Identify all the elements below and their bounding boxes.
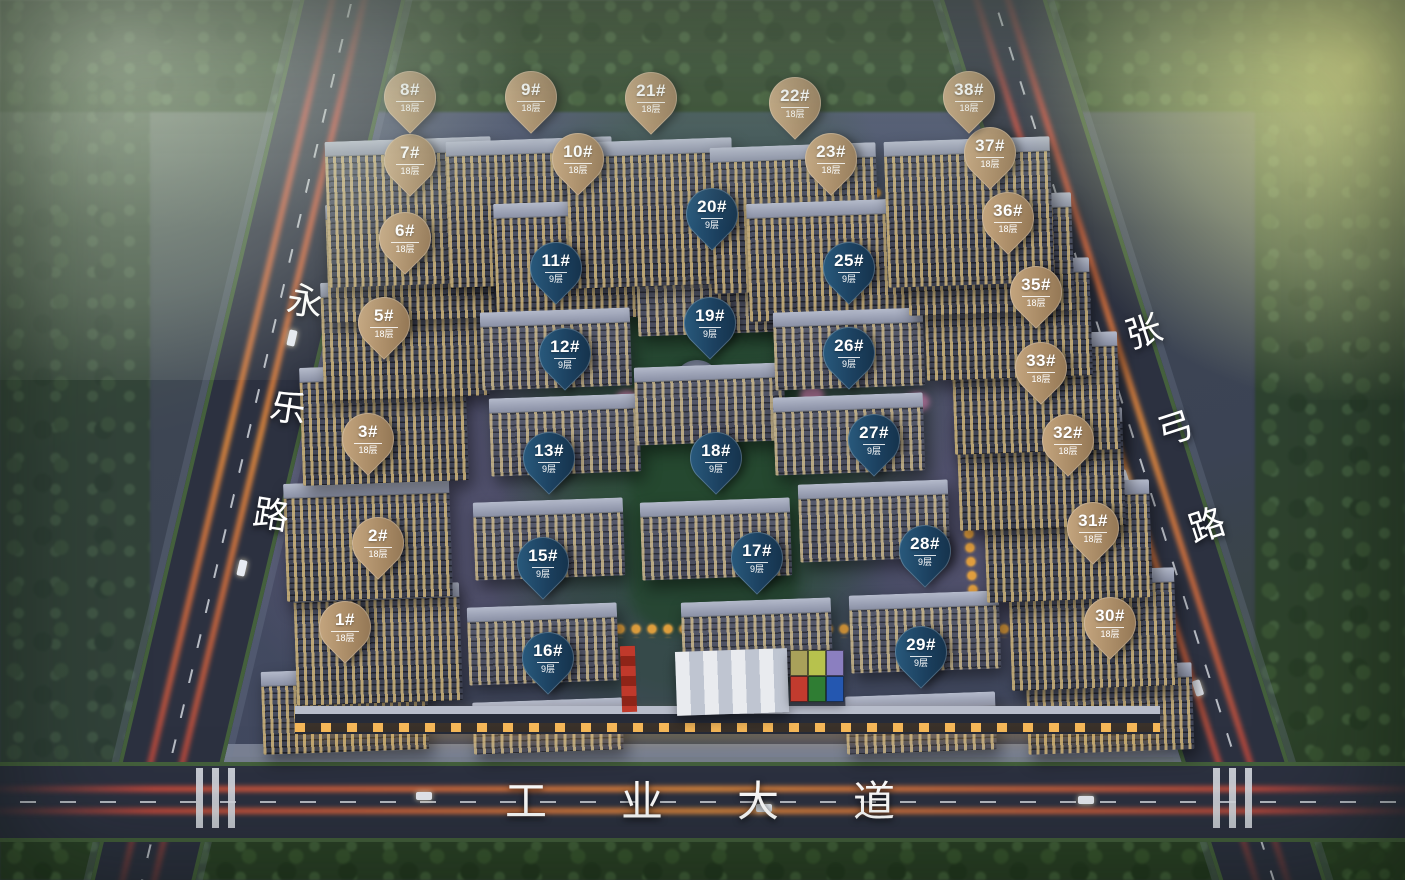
pin-content: 18#9层	[690, 432, 742, 484]
pin-content: 25#9层	[823, 242, 875, 294]
pin-content: 36#18层	[982, 192, 1034, 244]
pin-building-number: 2#	[368, 527, 388, 544]
building-pin-3[interactable]: 3#18层	[331, 402, 405, 476]
pin-building-number: 20#	[697, 198, 727, 215]
building-pin-17[interactable]: 17#9层	[720, 521, 794, 595]
pin-building-number: 26#	[834, 337, 864, 354]
pin-floor-count: 9层	[699, 327, 721, 340]
car	[1078, 796, 1094, 804]
pin-floor-count: 9层	[746, 562, 768, 575]
pin-content: 2#18层	[352, 517, 404, 569]
pin-floor-count: 18层	[1027, 372, 1054, 385]
pin-building-number: 27#	[859, 424, 889, 441]
pin-building-number: 12#	[550, 338, 580, 355]
pin-building-number: 36#	[993, 202, 1023, 219]
pin-content: 3#18层	[342, 413, 394, 465]
pin-floor-count: 9层	[554, 358, 576, 371]
building-pin-16[interactable]: 16#9层	[511, 621, 585, 695]
pin-floor-count: 18层	[564, 163, 591, 176]
building-pin-27[interactable]: 27#9层	[837, 403, 911, 477]
building-pin-29[interactable]: 29#9层	[884, 615, 958, 689]
pin-floor-count: 18层	[781, 107, 808, 120]
pin-building-number: 16#	[533, 642, 563, 659]
pin-building-number: 30#	[1095, 607, 1125, 624]
pin-floor-count: 18层	[637, 102, 664, 115]
building-pin-30[interactable]: 30#18层	[1073, 586, 1147, 660]
pin-floor-count: 9层	[838, 357, 860, 370]
pin-floor-count: 18层	[354, 443, 381, 456]
pin-floor-count: 9层	[910, 656, 932, 669]
pin-building-number: 23#	[816, 143, 846, 160]
pin-floor-count: 9层	[538, 462, 560, 475]
building-pin-23[interactable]: 23#18层	[794, 122, 868, 196]
aerial-masterplan: 1#18层2#18层3#18层5#18层6#18层7#18层8#18层9#18层…	[0, 0, 1405, 880]
building-pin-28[interactable]: 28#9层	[888, 514, 962, 588]
pin-content: 20#9层	[686, 188, 738, 240]
kindergarten-color-panels	[790, 650, 844, 702]
pin-content: 38#18层	[943, 71, 995, 123]
pin-content: 28#9层	[899, 525, 951, 577]
pin-floor-count: 18层	[817, 163, 844, 176]
pin-content: 22#18层	[769, 77, 821, 129]
color-panel	[790, 650, 808, 676]
pin-building-number: 11#	[542, 252, 571, 269]
building-pin-1[interactable]: 1#18层	[308, 590, 382, 664]
pin-floor-count: 9层	[838, 272, 860, 285]
pin-floor-count: 18层	[955, 101, 982, 114]
building-pin-26[interactable]: 26#9层	[812, 316, 886, 390]
crosswalk	[196, 768, 238, 828]
pin-floor-count: 18层	[1054, 444, 1081, 457]
pin-floor-count: 18层	[396, 101, 423, 114]
pin-content: 5#18层	[358, 297, 410, 349]
pin-building-number: 13#	[534, 442, 564, 459]
pin-building-number: 29#	[906, 636, 936, 653]
pin-building-number: 19#	[695, 307, 725, 324]
color-panel	[826, 676, 844, 702]
color-panel	[808, 650, 826, 676]
car	[416, 792, 432, 800]
pin-content: 27#9层	[848, 414, 900, 466]
pin-floor-count: 9层	[537, 662, 559, 675]
building-pin-21[interactable]: 21#18层	[614, 61, 688, 135]
pin-content: 16#9层	[522, 632, 574, 684]
pin-building-number: 32#	[1053, 424, 1083, 441]
building-pin-9[interactable]: 9#18层	[494, 60, 568, 134]
kindergarten-roof	[675, 648, 789, 716]
building-pin-22[interactable]: 22#18层	[758, 66, 832, 140]
building-pin-25[interactable]: 25#9层	[812, 231, 886, 305]
building-pin-5[interactable]: 5#18层	[347, 286, 421, 360]
pin-floor-count: 18层	[1096, 627, 1123, 640]
pin-building-number: 8#	[400, 81, 420, 98]
building-pin-10[interactable]: 10#18层	[541, 122, 615, 196]
pin-floor-count: 9层	[545, 272, 567, 285]
pin-content: 30#18层	[1084, 597, 1136, 649]
pin-content: 1#18层	[319, 601, 371, 653]
building-pin-32[interactable]: 32#18层	[1031, 403, 1105, 477]
pin-floor-count: 18层	[396, 164, 423, 177]
color-panel	[808, 676, 826, 702]
pin-building-number: 5#	[374, 307, 394, 324]
pin-floor-count: 9层	[705, 462, 727, 475]
building-pin-15[interactable]: 15#9层	[506, 526, 580, 600]
pin-building-number: 31#	[1078, 512, 1108, 529]
building-pin-8[interactable]: 8#18层	[373, 60, 447, 134]
pin-content: 15#9层	[517, 537, 569, 589]
pin-floor-count: 18层	[976, 157, 1003, 170]
pin-content: 29#9层	[895, 626, 947, 678]
pin-content: 37#18层	[964, 127, 1016, 179]
pin-building-number: 22#	[780, 87, 810, 104]
pin-content: 9#18层	[505, 71, 557, 123]
pin-floor-count: 18层	[331, 631, 358, 644]
pin-content: 26#9层	[823, 327, 875, 379]
pin-content: 7#18层	[384, 134, 436, 186]
pin-floor-count: 9层	[863, 444, 885, 457]
pin-content: 33#18层	[1015, 342, 1067, 394]
pin-building-number: 3#	[358, 423, 378, 440]
pin-building-number: 9#	[521, 81, 541, 98]
pin-building-number: 21#	[636, 82, 666, 99]
pin-floor-count: 9层	[532, 567, 554, 580]
pin-content: 12#9层	[539, 328, 591, 380]
pin-content: 19#9层	[684, 297, 736, 349]
building-pin-11[interactable]: 11#9层	[519, 231, 593, 305]
pin-content: 11#9层	[530, 242, 582, 294]
pin-content: 35#18层	[1010, 266, 1062, 318]
pin-floor-count: 18层	[391, 242, 418, 255]
pin-building-number: 6#	[395, 222, 415, 239]
building-pin-13[interactable]: 13#9层	[512, 421, 586, 495]
color-panel	[790, 676, 808, 702]
building-pin-38[interactable]: 38#18层	[932, 60, 1006, 134]
pin-floor-count: 18层	[1022, 296, 1049, 309]
pin-content: 17#9层	[731, 532, 783, 584]
forest-bottom	[0, 840, 1405, 880]
pin-building-number: 33#	[1026, 352, 1056, 369]
pin-floor-count: 9层	[701, 218, 723, 231]
building-pin-19[interactable]: 19#9层	[673, 286, 747, 360]
pin-content: 32#18层	[1042, 414, 1094, 466]
pin-content: 10#18层	[552, 133, 604, 185]
building-pin-20[interactable]: 20#9层	[675, 177, 749, 251]
pin-floor-count: 18层	[517, 101, 544, 114]
forest-top	[0, 0, 1405, 112]
pin-building-number: 35#	[1021, 276, 1051, 293]
pin-building-number: 17#	[742, 542, 772, 559]
pin-floor-count: 18层	[1079, 532, 1106, 545]
pin-content: 13#9层	[523, 432, 575, 484]
road-name-bottom: 工业大道	[505, 768, 969, 829]
pin-content: 6#18层	[379, 212, 431, 264]
pin-building-number: 1#	[335, 611, 355, 628]
pin-building-number: 18#	[701, 442, 731, 459]
crosswalk	[1213, 768, 1255, 828]
entry-red-carpet	[620, 646, 637, 712]
pin-floor-count: 18层	[994, 222, 1021, 235]
color-panel	[826, 650, 844, 676]
pin-content: 8#18层	[384, 71, 436, 123]
building-pin-7[interactable]: 7#18层	[373, 123, 447, 197]
pin-floor-count: 9层	[914, 555, 936, 568]
building-pin-35[interactable]: 35#18层	[999, 255, 1073, 329]
pin-floor-count: 18层	[364, 547, 391, 560]
pin-building-number: 15#	[528, 547, 558, 564]
forest-left	[0, 80, 150, 780]
pin-floor-count: 18层	[370, 327, 397, 340]
building-pin-36[interactable]: 36#18层	[971, 181, 1045, 255]
pin-content: 21#18层	[625, 72, 677, 124]
building-pin-12[interactable]: 12#9层	[528, 317, 602, 391]
pin-content: 31#18层	[1067, 502, 1119, 554]
pin-building-number: 10#	[563, 143, 593, 160]
building-pin-6[interactable]: 6#18层	[368, 201, 442, 275]
pin-content: 23#18层	[805, 133, 857, 185]
pin-building-number: 38#	[954, 81, 984, 98]
panel-row	[790, 650, 844, 676]
building-pin-33[interactable]: 33#18层	[1004, 331, 1078, 405]
building-pin-31[interactable]: 31#18层	[1056, 491, 1130, 565]
pin-building-number: 28#	[910, 535, 940, 552]
building-pin-18[interactable]: 18#9层	[679, 421, 753, 495]
pin-building-number: 7#	[400, 144, 420, 161]
pin-building-number: 25#	[834, 252, 864, 269]
panel-row	[790, 676, 844, 702]
pin-building-number: 37#	[975, 137, 1005, 154]
building-pin-2[interactable]: 2#18层	[341, 506, 415, 580]
